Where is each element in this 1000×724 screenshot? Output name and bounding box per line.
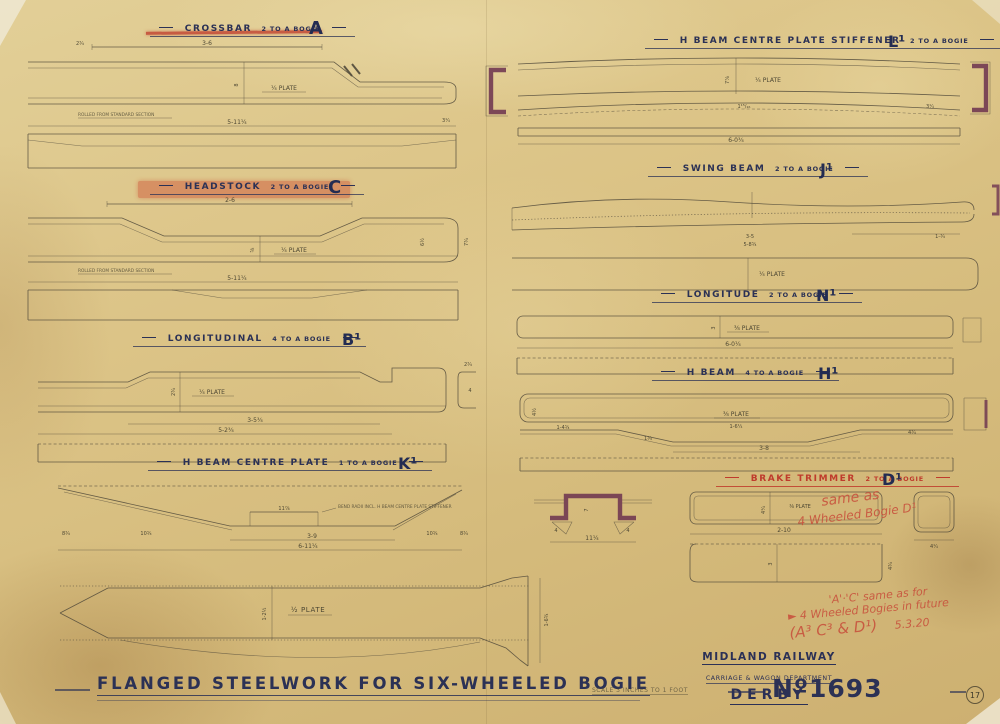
- hbeam-dim-mid: 1-6¼: [729, 424, 742, 430]
- hbeam-drawing: 4½ 1-4¾ ⅜ PLATE 1-6¼ 1¾ 3-8 4¾: [508, 372, 998, 474]
- stiffener-title-text: H BEAM CENTRE PLATE STIFFENER: [680, 36, 901, 46]
- longitude-dim-bottom: 6-0¼: [725, 341, 741, 348]
- brake-trimmer-dim-v1: 4¼: [761, 506, 767, 514]
- stiffener-drawing: 7⅞ ¼ PLATE 1¹⁵/₁₆ 3¼ 6-0¾: [478, 48, 995, 160]
- longitudinal-sec-h: 4: [468, 388, 471, 394]
- swing-beam-title: SWING BEAM 2 TO A BOGIE: [648, 164, 868, 177]
- crossbar-title: CROSSBAR 2 TO A BOGIE: [150, 24, 355, 37]
- centre-plate-lower-drawing: ½ PLATE 1-2½ 1-6¾: [50, 548, 560, 668]
- stiffener-dim-mid: 1¹⁵/₁₆: [738, 104, 751, 110]
- headstock-dim-depth: ⅝: [250, 247, 256, 252]
- brake-trimmer-dim-bottom: 2-10: [777, 527, 791, 534]
- centre-plate-code: K¹: [398, 454, 417, 473]
- title-underline-2: [97, 700, 640, 701]
- centre-plate-qty: 1 TO A BOGIE: [339, 459, 398, 467]
- crossbar-drawing: 3-6 2¾ 8 ¼ PLATE ROLLED FROM STANDARD SE…: [22, 38, 472, 178]
- centre-plate-dim-slope-l: 10¾: [140, 531, 151, 537]
- tophat-section-drawing: 11¼ 4 4 7: [528, 462, 658, 562]
- longitudinal-qty: 4 TO A BOGIE: [272, 335, 331, 343]
- stiffener-dim-depth: 7⅞: [725, 76, 731, 84]
- centre-plate-dim-plateau: 11⅞: [278, 506, 289, 512]
- crossbar-dim-bottom: 5-11¼: [227, 119, 247, 126]
- swing-beam-dim1: 3-5: [746, 234, 754, 240]
- stiffener-dim-bottom: 6-0¾: [728, 137, 744, 144]
- tophat-dim-f2: 4: [626, 528, 629, 534]
- centre-plate-title-text: H BEAM CENTRE PLATE: [183, 458, 330, 468]
- hbeam-dim-slope: 1¾: [644, 436, 652, 442]
- longitudinal-drawing: 2¾ ¼ PLATE 3-5¾ 5-2¾ 2¾ 4: [30, 352, 480, 467]
- headstock-dim-top: 2-6: [225, 197, 235, 204]
- brake-trimmer-dim-v2: 3: [768, 562, 774, 565]
- longitudinal-title: LONGITUDINAL 4 TO A BOGIE: [133, 334, 366, 347]
- longitudinal-dim-depth: 2¾: [171, 388, 177, 396]
- centre-plate-note: BEND RADII INCL. H BEAM CENTRE PLATE STI…: [338, 504, 452, 510]
- longitude-dim-depth: 3: [711, 326, 717, 329]
- headstock-qty: 2 TO A BOGIE: [271, 183, 330, 191]
- centre-plate-dim-slope-r: 10¾: [426, 531, 437, 537]
- title-leading-dash: [55, 689, 90, 691]
- longitudinal-dim1: 3-5¾: [247, 417, 263, 424]
- scale-note: SCALE 3 INCHES TO 1 FOOT: [592, 687, 688, 695]
- number-leading-dash: [728, 691, 764, 693]
- swing-beam-dim-end: 1-¾: [935, 234, 945, 240]
- hbeam-dim-span: 3-8: [759, 445, 769, 452]
- tophat-dim-w: 11¼: [585, 535, 599, 542]
- crossbar-section-note: ROLLED FROM STANDARD SECTION: [78, 112, 154, 118]
- sheet-title: FLANGED STEELWORK FOR SIX-WHEELED BOGIE: [97, 674, 650, 696]
- centre-plate-plate-note: ½ PLATE: [291, 606, 325, 614]
- hbeam-dim-left: 1-4¾: [556, 425, 569, 431]
- longitudinal-code: B¹: [342, 330, 361, 349]
- swing-beam-drawing: 3-5 5-8¾ 1-¾ ¼ PLATE: [500, 178, 1000, 296]
- swing-beam-title-text: SWING BEAM: [683, 164, 766, 174]
- headstock-plate-note: ¼ PLATE: [281, 247, 307, 254]
- brake-trimmer-sec-dim: 4¼: [930, 544, 938, 550]
- crossbar-dim-depth: 8: [234, 83, 240, 86]
- swing-beam-plate-note: ¼ PLATE: [759, 271, 785, 278]
- longitude-plate-note: ⅜ PLATE: [734, 325, 760, 332]
- centre-plate-dim-end-l: 8¾: [62, 531, 70, 537]
- longitudinal-title-text: LONGITUDINAL: [168, 334, 263, 344]
- longitudinal-sec-w: 2¾: [464, 362, 472, 368]
- crossbar-plate-note: ¼ PLATE: [271, 85, 297, 92]
- headstock-dim-bottom: 5-11¼: [227, 275, 247, 282]
- drawing-sheet: CROSSBAR 2 TO A BOGIE A 3-6 2¾ 8 ¼ PLATE…: [0, 0, 1000, 724]
- brake-trimmer-plate-note: ⅜ PLATE: [789, 504, 811, 510]
- longitudinal-plate-note: ¼ PLATE: [199, 389, 225, 396]
- stiffener-dim-end: 3¼: [926, 104, 934, 110]
- hbeam-dim-right: 4¾: [908, 430, 916, 436]
- drawing-number: Nº1693: [772, 674, 883, 703]
- crossbar-dim-end: 3¼: [442, 118, 450, 124]
- crossbar-code: A: [309, 18, 323, 39]
- stamp-railway-name: MIDLAND RAILWAY: [702, 651, 835, 665]
- headstock-dim-right1: 6½: [419, 238, 426, 246]
- headstock-drawing: 2-6 ⅝ ¼ PLATE 6½ 7¾ ROLLED FROM STANDARD…: [22, 192, 472, 326]
- headstock-dim-right2: 7¾: [464, 238, 470, 246]
- number-trailing-dash: [950, 691, 966, 693]
- swing-beam-dim2: 5-8¾: [743, 242, 756, 248]
- stiffener-qty: 2 TO A BOGIE: [910, 37, 969, 45]
- headstock-section-note: ROLLED FROM STANDARD SECTION: [78, 268, 154, 274]
- headstock-title-text: HEADSTOCK: [185, 182, 261, 192]
- longitude-drawing: 3 ⅜ PLATE 6-0¼: [505, 298, 995, 378]
- crossbar-title-text: CROSSBAR: [185, 24, 252, 34]
- scan-corner-bottom-left: [0, 692, 16, 724]
- longitudinal-dim2: 5-2¾: [218, 427, 234, 434]
- scan-corner-top-right: [972, 0, 1000, 24]
- hbeam-dim-left-v: 4½: [531, 408, 538, 416]
- sheet-circle-value: 17: [970, 691, 980, 700]
- centre-plate-title: H BEAM CENTRE PLATE 1 TO A BOGIE: [148, 458, 432, 471]
- crossbar-dim-top: 3-6: [202, 40, 212, 47]
- main-red-note-date: 5.3.20: [894, 616, 930, 632]
- tophat-dim-h: 7: [584, 508, 590, 511]
- centre-plate-dim-end-r: 8¾: [460, 531, 468, 537]
- centre-plate-dim-v2: 1-6¾: [544, 613, 550, 626]
- centre-plate-dim-v1: 1-2½: [261, 607, 268, 620]
- centre-plate-dim-flat: 3-9: [307, 533, 317, 540]
- hbeam-plate-note: ⅜ PLATE: [723, 411, 749, 418]
- brake-trimmer-dim-end: 4¾: [888, 562, 894, 570]
- sheet-circle-number: 17: [966, 686, 984, 704]
- tophat-dim-f1: 4: [554, 528, 557, 534]
- swing-beam-code: J¹: [820, 160, 833, 179]
- stiffener-plate-note: ¼ PLATE: [755, 77, 781, 84]
- crossbar-dim-top-small: 2¾: [76, 41, 84, 47]
